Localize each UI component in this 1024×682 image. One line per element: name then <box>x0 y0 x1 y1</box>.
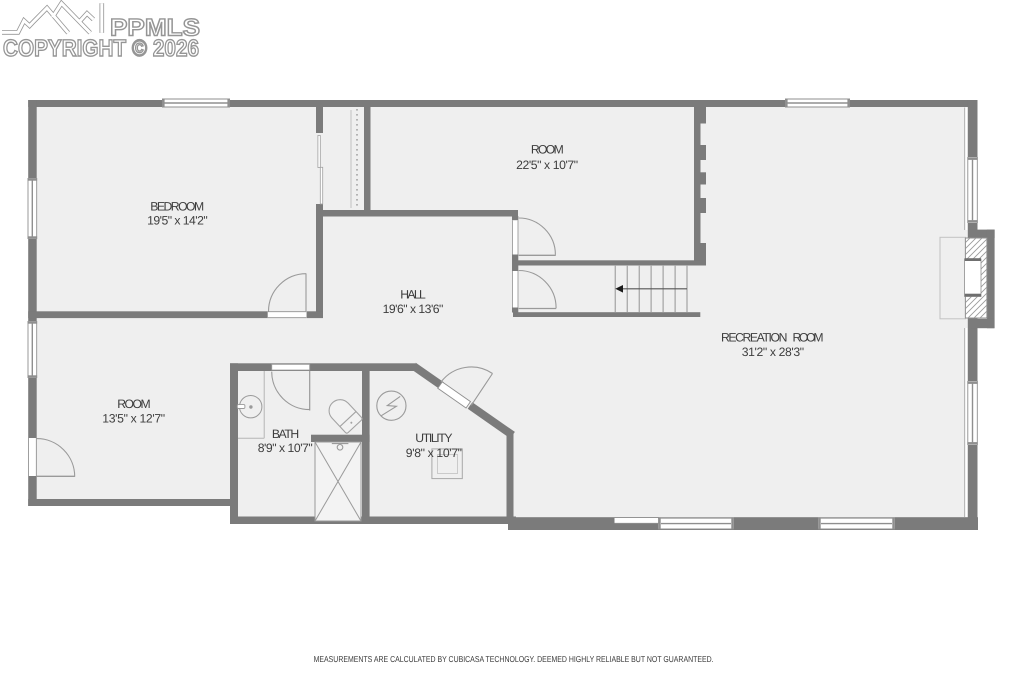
svg-text:8'9" x 10'7": 8'9" x 10'7" <box>258 441 313 455</box>
svg-text:19'5" x 14'2": 19'5" x 14'2" <box>147 213 208 227</box>
svg-text:9'8" x 10'7": 9'8" x 10'7" <box>406 446 462 460</box>
svg-text:31'2" x 28'3": 31'2" x 28'3" <box>742 345 804 359</box>
svg-text:HALL: HALL <box>400 288 426 302</box>
svg-text:MEASUREMENTS ARE CALCULATED BY: MEASUREMENTS ARE CALCULATED BY CUBICASA … <box>314 654 714 664</box>
svg-text:19'6" x 13'6": 19'6" x 13'6" <box>383 302 444 316</box>
svg-text:ROOM: ROOM <box>117 397 150 411</box>
svg-text:22'5" x 10'7": 22'5" x 10'7" <box>516 158 578 172</box>
svg-text:BEDROOM: BEDROOM <box>150 199 204 213</box>
svg-text:UTILITY: UTILITY <box>415 431 452 445</box>
svg-text:BATH: BATH <box>272 427 299 441</box>
svg-text:RECREATION: RECREATION <box>721 330 788 344</box>
svg-text:ROOM: ROOM <box>531 143 564 157</box>
svg-text:ROOM: ROOM <box>793 330 824 344</box>
svg-text:COPYRIGHT © 2026: COPYRIGHT © 2026 <box>3 35 199 61</box>
svg-text:13'5" x 12'7": 13'5" x 12'7" <box>102 411 165 425</box>
